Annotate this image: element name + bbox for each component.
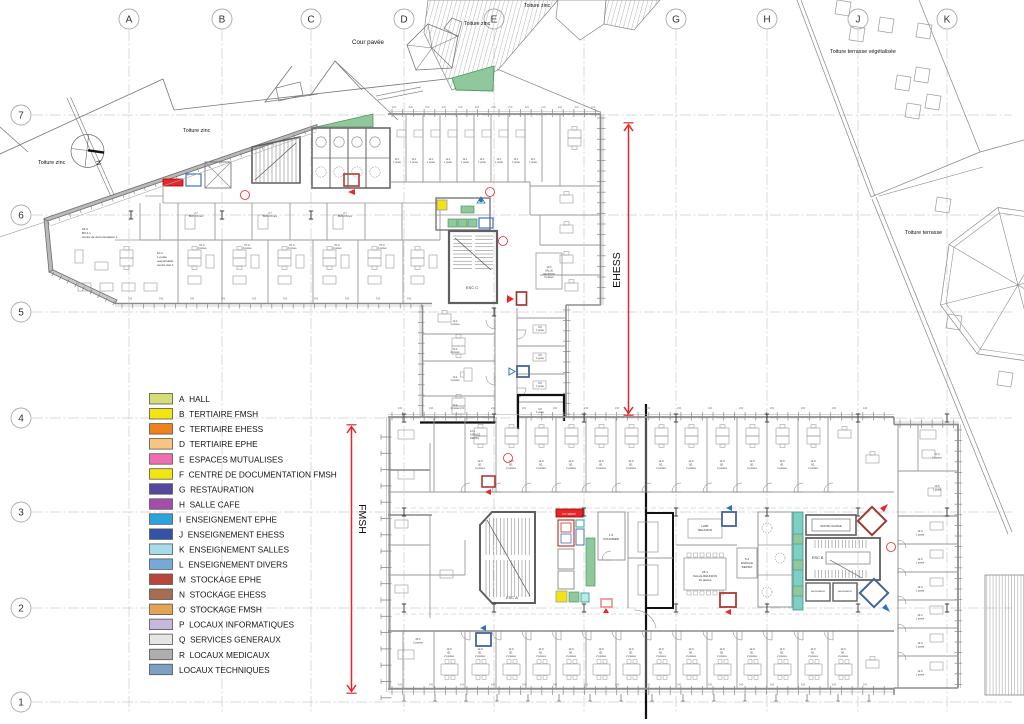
svg-text:1 poste: 1 poste <box>393 161 402 164</box>
svg-text:345: 345 <box>252 297 257 301</box>
svg-text:G: G <box>672 15 680 26</box>
svg-text:2 postes: 2 postes <box>413 640 424 644</box>
svg-text:centre de documentation 1: centre de documentation 1 <box>82 235 118 239</box>
svg-text:25.2: 25.2 <box>415 637 421 641</box>
svg-text:2 postes: 2 postes <box>450 407 460 410</box>
svg-text:A HALL: A HALL <box>179 394 210 404</box>
svg-text:N STOCKAGE EHESS: N STOCKAGE EHESS <box>179 590 266 600</box>
svg-text:240: 240 <box>615 683 620 687</box>
svg-text:2 postes: 2 postes <box>566 466 577 470</box>
svg-text:Toiture zinc: Toiture zinc <box>38 160 66 166</box>
svg-text:PC SERR: PC SERR <box>562 512 576 516</box>
svg-text:J ENSEIGNEMENT EHESS: J ENSEIGNEMENT EHESS <box>179 529 285 539</box>
svg-text:B1: B1 <box>720 650 724 654</box>
svg-text:2 postes: 2 postes <box>506 654 517 658</box>
svg-text:345: 345 <box>159 297 164 301</box>
svg-text:1 poste: 1 poste <box>512 161 521 164</box>
svg-text:3 postes: 3 postes <box>197 247 207 250</box>
svg-text:K: K <box>944 15 951 26</box>
svg-text:345: 345 <box>128 297 133 301</box>
svg-text:2x0: 2x0 <box>508 105 513 109</box>
svg-text:C TERTIAIRE EHESS: C TERTIAIRE EHESS <box>179 424 264 434</box>
svg-text:REPRO: REPRO <box>470 436 479 440</box>
svg-text:F CENTRE DE DOCUMENTATION FMS: F CENTRE DE DOCUMENTATION FMSH <box>179 469 337 479</box>
svg-text:2 postes: 2 postes <box>444 654 455 658</box>
svg-text:2 postes: 2 postes <box>596 654 607 658</box>
svg-text:B: B <box>219 15 226 26</box>
svg-text:A: A <box>126 15 133 26</box>
svg-text:2 postes: 2 postes <box>450 379 460 382</box>
svg-text:12.0: 12.0 <box>917 557 923 561</box>
svg-text:2 postes: 2 postes <box>475 654 486 658</box>
svg-text:B1: B1 <box>750 462 754 466</box>
svg-text:12.9: 12.9 <box>779 647 785 651</box>
svg-text:12.9: 12.9 <box>446 647 452 651</box>
svg-text:1 poste: 1 poste <box>933 487 942 491</box>
svg-text:2x0: 2x0 <box>409 105 414 109</box>
svg-text:1 poste: 1 poste <box>916 532 925 536</box>
svg-text:2 postes: 2 postes <box>450 323 460 326</box>
svg-text:2 postes: 2 postes <box>596 466 607 470</box>
svg-text:2 postes: 2 postes <box>656 654 667 658</box>
svg-text:2 postes: 2 postes <box>450 351 460 354</box>
svg-text:2 postes: 2 postes <box>717 654 728 658</box>
svg-text:ASCENSEUR: ASCENSEUR <box>838 590 852 593</box>
svg-text:3 postes: 3 postes <box>287 247 297 250</box>
svg-text:B1: B1 <box>478 462 482 466</box>
svg-text:2x0: 2x0 <box>575 105 580 109</box>
svg-text:7: 7 <box>18 111 24 122</box>
svg-text:B1: B1 <box>599 462 603 466</box>
svg-text:B1: B1 <box>811 462 815 466</box>
svg-text:1 poste: 1 poste <box>444 161 453 164</box>
svg-text:2 postes: 2 postes <box>475 466 486 470</box>
svg-text:240: 240 <box>522 683 527 687</box>
svg-text:12.9: 12.9 <box>628 459 634 463</box>
svg-text:COURRIER: COURRIER <box>603 537 620 541</box>
svg-text:Toiture terrasse végétalisée: Toiture terrasse végétalisée <box>830 49 896 55</box>
svg-text:240: 240 <box>832 683 837 687</box>
svg-text:Toiture terrasse: Toiture terrasse <box>905 230 942 236</box>
svg-text:240: 240 <box>584 683 589 687</box>
svg-text:B1: B1 <box>447 650 451 654</box>
svg-text:12.9: 12.9 <box>508 459 514 463</box>
svg-text:2 postes: 2 postes <box>777 466 788 470</box>
svg-text:12.9: 12.9 <box>749 459 755 463</box>
svg-text:1 poste: 1 poste <box>461 161 470 164</box>
svg-text:2x0: 2x0 <box>558 105 563 109</box>
svg-text:345: 345 <box>407 297 412 301</box>
svg-text:345: 345 <box>345 297 350 301</box>
svg-text:12.9: 12.9 <box>749 647 755 651</box>
svg-text:O STOCKAGE FMSH: O STOCKAGE FMSH <box>179 605 262 615</box>
svg-text:240: 240 <box>553 683 558 687</box>
svg-text:Toiture zinc: Toiture zinc <box>183 128 211 134</box>
svg-text:B1: B1 <box>539 650 543 654</box>
svg-text:3 postes: 3 postes <box>377 247 387 250</box>
svg-text:2 postes: 2 postes <box>506 466 517 470</box>
svg-text:1 poste: 1 poste <box>916 588 925 592</box>
svg-text:12.1: 12.1 <box>470 429 476 433</box>
svg-text:1 poste: 1 poste <box>916 644 925 648</box>
svg-text:12.9: 12.9 <box>598 647 604 651</box>
svg-text:240: 240 <box>677 406 682 410</box>
svg-text:3 postes: 3 postes <box>332 247 342 250</box>
svg-text:240: 240 <box>739 406 744 410</box>
svg-text:240: 240 <box>832 406 837 410</box>
svg-text:B1: B1 <box>659 462 663 466</box>
svg-text:B1: B1 <box>569 462 573 466</box>
svg-text:B1: B1 <box>780 650 784 654</box>
svg-text:B1: B1 <box>539 462 543 466</box>
svg-text:ASCENSEUR: ASCENSEUR <box>811 590 825 593</box>
svg-text:1 poste: 1 poste <box>410 161 419 164</box>
svg-text:1 poste: 1 poste <box>427 161 436 164</box>
svg-text:12.9: 12.9 <box>840 647 846 651</box>
svg-text:240: 240 <box>584 406 589 410</box>
svg-text:B TERTIAIRE FMSH: B TERTIAIRE FMSH <box>179 409 258 419</box>
svg-text:240: 240 <box>708 406 713 410</box>
svg-text:12.9: 12.9 <box>810 459 816 463</box>
svg-text:240: 240 <box>522 406 527 410</box>
svg-text:240: 240 <box>739 683 744 687</box>
svg-text:2 postes: 2 postes <box>566 654 577 658</box>
svg-text:240: 240 <box>460 406 465 410</box>
svg-text:12.9: 12.9 <box>779 459 785 463</box>
svg-text:1 poste: 1 poste <box>529 161 538 164</box>
svg-text:240: 240 <box>429 683 434 687</box>
svg-text:H SALLE CAFE: H SALLE CAFE <box>179 499 240 509</box>
svg-text:Cour pavée: Cour pavée <box>352 39 385 46</box>
svg-text:12.9: 12.9 <box>568 459 574 463</box>
svg-text:2x0: 2x0 <box>442 105 447 109</box>
svg-text:12.0: 12.0 <box>917 585 923 589</box>
svg-text:240: 240 <box>863 683 868 687</box>
svg-text:12.0: 12.0 <box>917 529 923 533</box>
svg-text:2 postes: 2 postes <box>838 654 849 658</box>
svg-text:240: 240 <box>708 683 713 687</box>
svg-text:centre doc 1: centre doc 1 <box>157 263 174 267</box>
svg-text:LOCAUX TECHNIQUES: LOCAUX TECHNIQUES <box>179 665 270 675</box>
svg-text:240: 240 <box>863 406 868 410</box>
svg-text:K ENSEIGNEMENT SALLES: K ENSEIGNEMENT SALLES <box>179 545 290 555</box>
svg-text:Toiture zinc: Toiture zinc <box>524 3 551 9</box>
svg-text:12.9: 12.9 <box>688 459 694 463</box>
svg-text:240: 240 <box>615 406 620 410</box>
svg-text:13.5: 13.5 <box>934 484 940 488</box>
svg-text:B1: B1 <box>750 650 754 654</box>
svg-text:240: 240 <box>398 406 403 410</box>
svg-text:B1: B1 <box>720 462 724 466</box>
svg-text:345: 345 <box>376 297 381 301</box>
svg-text:2 postes: 2 postes <box>808 654 819 658</box>
svg-text:REPRO: REPRO <box>742 565 753 569</box>
svg-text:B1: B1 <box>599 650 603 654</box>
svg-text:2 postes: 2 postes <box>686 654 697 658</box>
svg-text:B1: B1 <box>629 650 633 654</box>
svg-text:REUNION: REUNION <box>698 528 712 532</box>
svg-text:BUR 2/3 pers: BUR 2/3 pers <box>338 215 353 218</box>
svg-text:D TERTIAIRE EPHE: D TERTIAIRE EPHE <box>179 439 258 449</box>
svg-text:12.9: 12.9 <box>508 647 514 651</box>
svg-text:240: 240 <box>429 406 434 410</box>
svg-text:1 poste: 1 poste <box>478 161 487 164</box>
svg-text:345: 345 <box>283 297 288 301</box>
svg-text:240: 240 <box>770 406 775 410</box>
svg-text:12.9: 12.9 <box>477 459 483 463</box>
svg-text:FMSH: FMSH <box>356 504 368 534</box>
svg-text:240: 240 <box>491 406 496 410</box>
svg-text:2 postes: 2 postes <box>932 455 943 459</box>
svg-text:2 postes: 2 postes <box>686 466 697 470</box>
svg-text:2 postes: 2 postes <box>626 466 637 470</box>
svg-text:240: 240 <box>398 683 403 687</box>
svg-text:B1: B1 <box>811 650 815 654</box>
svg-text:L ENSEIGNEMENT DIVERS: L ENSEIGNEMENT DIVERS <box>179 560 288 570</box>
svg-text:240: 240 <box>553 406 558 410</box>
svg-text:2 postes: 2 postes <box>747 466 758 470</box>
svg-text:12.9: 12.9 <box>658 647 664 651</box>
svg-text:12.9: 12.9 <box>688 647 694 651</box>
svg-text:MONTE CHARGE: MONTE CHARGE <box>820 524 841 528</box>
svg-text:D: D <box>400 15 407 26</box>
svg-text:B1: B1 <box>509 462 513 466</box>
svg-text:Q SERVICES GENERAUX: Q SERVICES GENERAUX <box>179 635 281 645</box>
svg-text:240: 240 <box>801 683 806 687</box>
svg-text:E ESPACES MUTUALISES: E ESPACES MUTUALISES <box>179 454 284 464</box>
svg-text:M STOCKAGE EPHE: M STOCKAGE EPHE <box>179 575 262 585</box>
svg-text:3 postes: 3 postes <box>242 247 252 250</box>
svg-text:ESC A: ESC A <box>506 595 518 600</box>
svg-text:3: 3 <box>18 508 24 519</box>
svg-text:240: 240 <box>677 683 682 687</box>
svg-text:6 places: 6 places <box>544 276 554 279</box>
svg-text:BUR 2/3 pers: BUR 2/3 pers <box>189 215 204 218</box>
svg-text:12.9: 12.9 <box>628 647 634 651</box>
svg-text:345: 345 <box>221 297 226 301</box>
svg-text:240: 240 <box>801 406 806 410</box>
svg-text:2 postes: 2 postes <box>536 654 547 658</box>
svg-text:12.9: 12.9 <box>719 459 725 463</box>
svg-text:12.0: 12.0 <box>917 641 923 645</box>
svg-text:2 postes: 2 postes <box>777 654 788 658</box>
svg-text:G RESTAURATION: G RESTAURATION <box>179 484 254 494</box>
svg-text:240: 240 <box>646 683 651 687</box>
svg-text:P LOCAUX INFORMATIQUES: P LOCAUX INFORMATIQUES <box>179 620 295 630</box>
svg-text:6: 6 <box>18 211 24 222</box>
svg-text:240: 240 <box>491 683 496 687</box>
svg-text:1 poste: 1 poste <box>916 616 925 620</box>
svg-text:B1: B1 <box>629 462 633 466</box>
svg-text:345: 345 <box>314 297 319 301</box>
svg-text:12.9: 12.9 <box>598 459 604 463</box>
svg-text:B1: B1 <box>659 650 663 654</box>
svg-text:1 poste: 1 poste <box>916 560 925 564</box>
svg-text:12.9: 12.9 <box>538 459 544 463</box>
svg-text:1 poste: 1 poste <box>536 385 545 388</box>
svg-text:R LOCAUX MEDICAUX: R LOCAUX MEDICAUX <box>179 650 270 660</box>
svg-text:12.0: 12.0 <box>917 613 923 617</box>
svg-text:2x0: 2x0 <box>492 105 497 109</box>
svg-text:ESPACE: ESPACE <box>470 432 481 436</box>
svg-text:1: 1 <box>18 698 24 709</box>
svg-text:1 poste: 1 poste <box>495 161 504 164</box>
svg-text:12.9: 12.9 <box>658 459 664 463</box>
svg-text:BUR 2/3 pers: BUR 2/3 pers <box>263 215 278 218</box>
svg-text:240: 240 <box>770 683 775 687</box>
svg-text:5: 5 <box>18 308 24 319</box>
svg-text:12.0: 12.0 <box>917 669 923 673</box>
svg-text:C: C <box>307 15 314 26</box>
svg-text:16 places: 16 places <box>699 578 712 582</box>
svg-text:B1: B1 <box>841 650 845 654</box>
svg-text:2 postes: 2 postes <box>747 654 758 658</box>
svg-text:12.9: 12.9 <box>538 647 544 651</box>
svg-text:B1: B1 <box>509 650 513 654</box>
svg-text:2x0: 2x0 <box>525 105 530 109</box>
svg-text:2: 2 <box>18 604 24 615</box>
svg-text:2x0: 2x0 <box>392 105 397 109</box>
svg-text:12.9: 12.9 <box>810 647 816 651</box>
svg-text:1 poste: 1 poste <box>536 411 545 414</box>
svg-text:345: 345 <box>190 297 195 301</box>
svg-text:2x0: 2x0 <box>458 105 463 109</box>
svg-text:B1: B1 <box>689 462 693 466</box>
svg-text:2 postes: 2 postes <box>717 466 728 470</box>
svg-text:1 poste: 1 poste <box>916 672 925 676</box>
svg-text:2 postes: 2 postes <box>656 466 667 470</box>
svg-text:2 postes: 2 postes <box>626 654 637 658</box>
svg-text:Toiture zinc: Toiture zinc <box>464 21 491 27</box>
svg-text:12.9: 12.9 <box>477 647 483 651</box>
svg-text:I ENSEIGNEMENT EPHE: I ENSEIGNEMENT EPHE <box>179 514 278 524</box>
svg-text:1 poste: 1 poste <box>536 329 545 332</box>
svg-text:EHESS: EHESS <box>611 252 623 288</box>
svg-text:1 poste: 1 poste <box>536 357 545 360</box>
svg-text:2x0: 2x0 <box>425 105 430 109</box>
svg-text:4: 4 <box>18 414 24 425</box>
svg-text:ESC C: ESC C <box>466 285 478 290</box>
svg-text:2x0: 2x0 <box>475 105 480 109</box>
svg-text:27.0: 27.0 <box>934 452 940 456</box>
svg-text:240: 240 <box>460 683 465 687</box>
svg-text:2 postes: 2 postes <box>536 466 547 470</box>
svg-text:ESC B: ESC B <box>812 556 824 560</box>
svg-text:12.9: 12.9 <box>719 647 725 651</box>
svg-text:B1: B1 <box>478 650 482 654</box>
svg-text:B1: B1 <box>689 650 693 654</box>
svg-text:H: H <box>763 15 770 26</box>
svg-text:12.9: 12.9 <box>568 647 574 651</box>
svg-text:B1: B1 <box>569 650 573 654</box>
svg-text:B1: B1 <box>780 462 784 466</box>
svg-text:2 postes: 2 postes <box>808 466 819 470</box>
svg-text:240: 240 <box>646 406 651 410</box>
svg-text:2x0: 2x0 <box>541 105 546 109</box>
svg-text:J: J <box>856 15 861 26</box>
